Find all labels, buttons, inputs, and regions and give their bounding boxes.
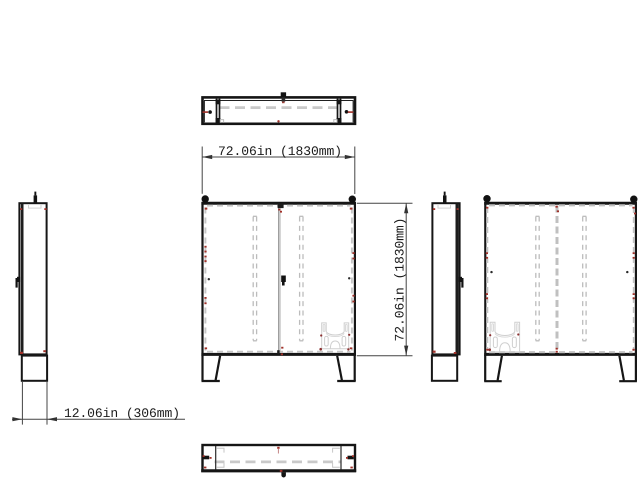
svg-text:72.06in (1830mm): 72.06in (1830mm) bbox=[392, 218, 407, 342]
svg-text:72.06in (1830mm): 72.06in (1830mm) bbox=[218, 144, 342, 159]
svg-text:12.06in (306mm): 12.06in (306mm) bbox=[64, 406, 180, 421]
